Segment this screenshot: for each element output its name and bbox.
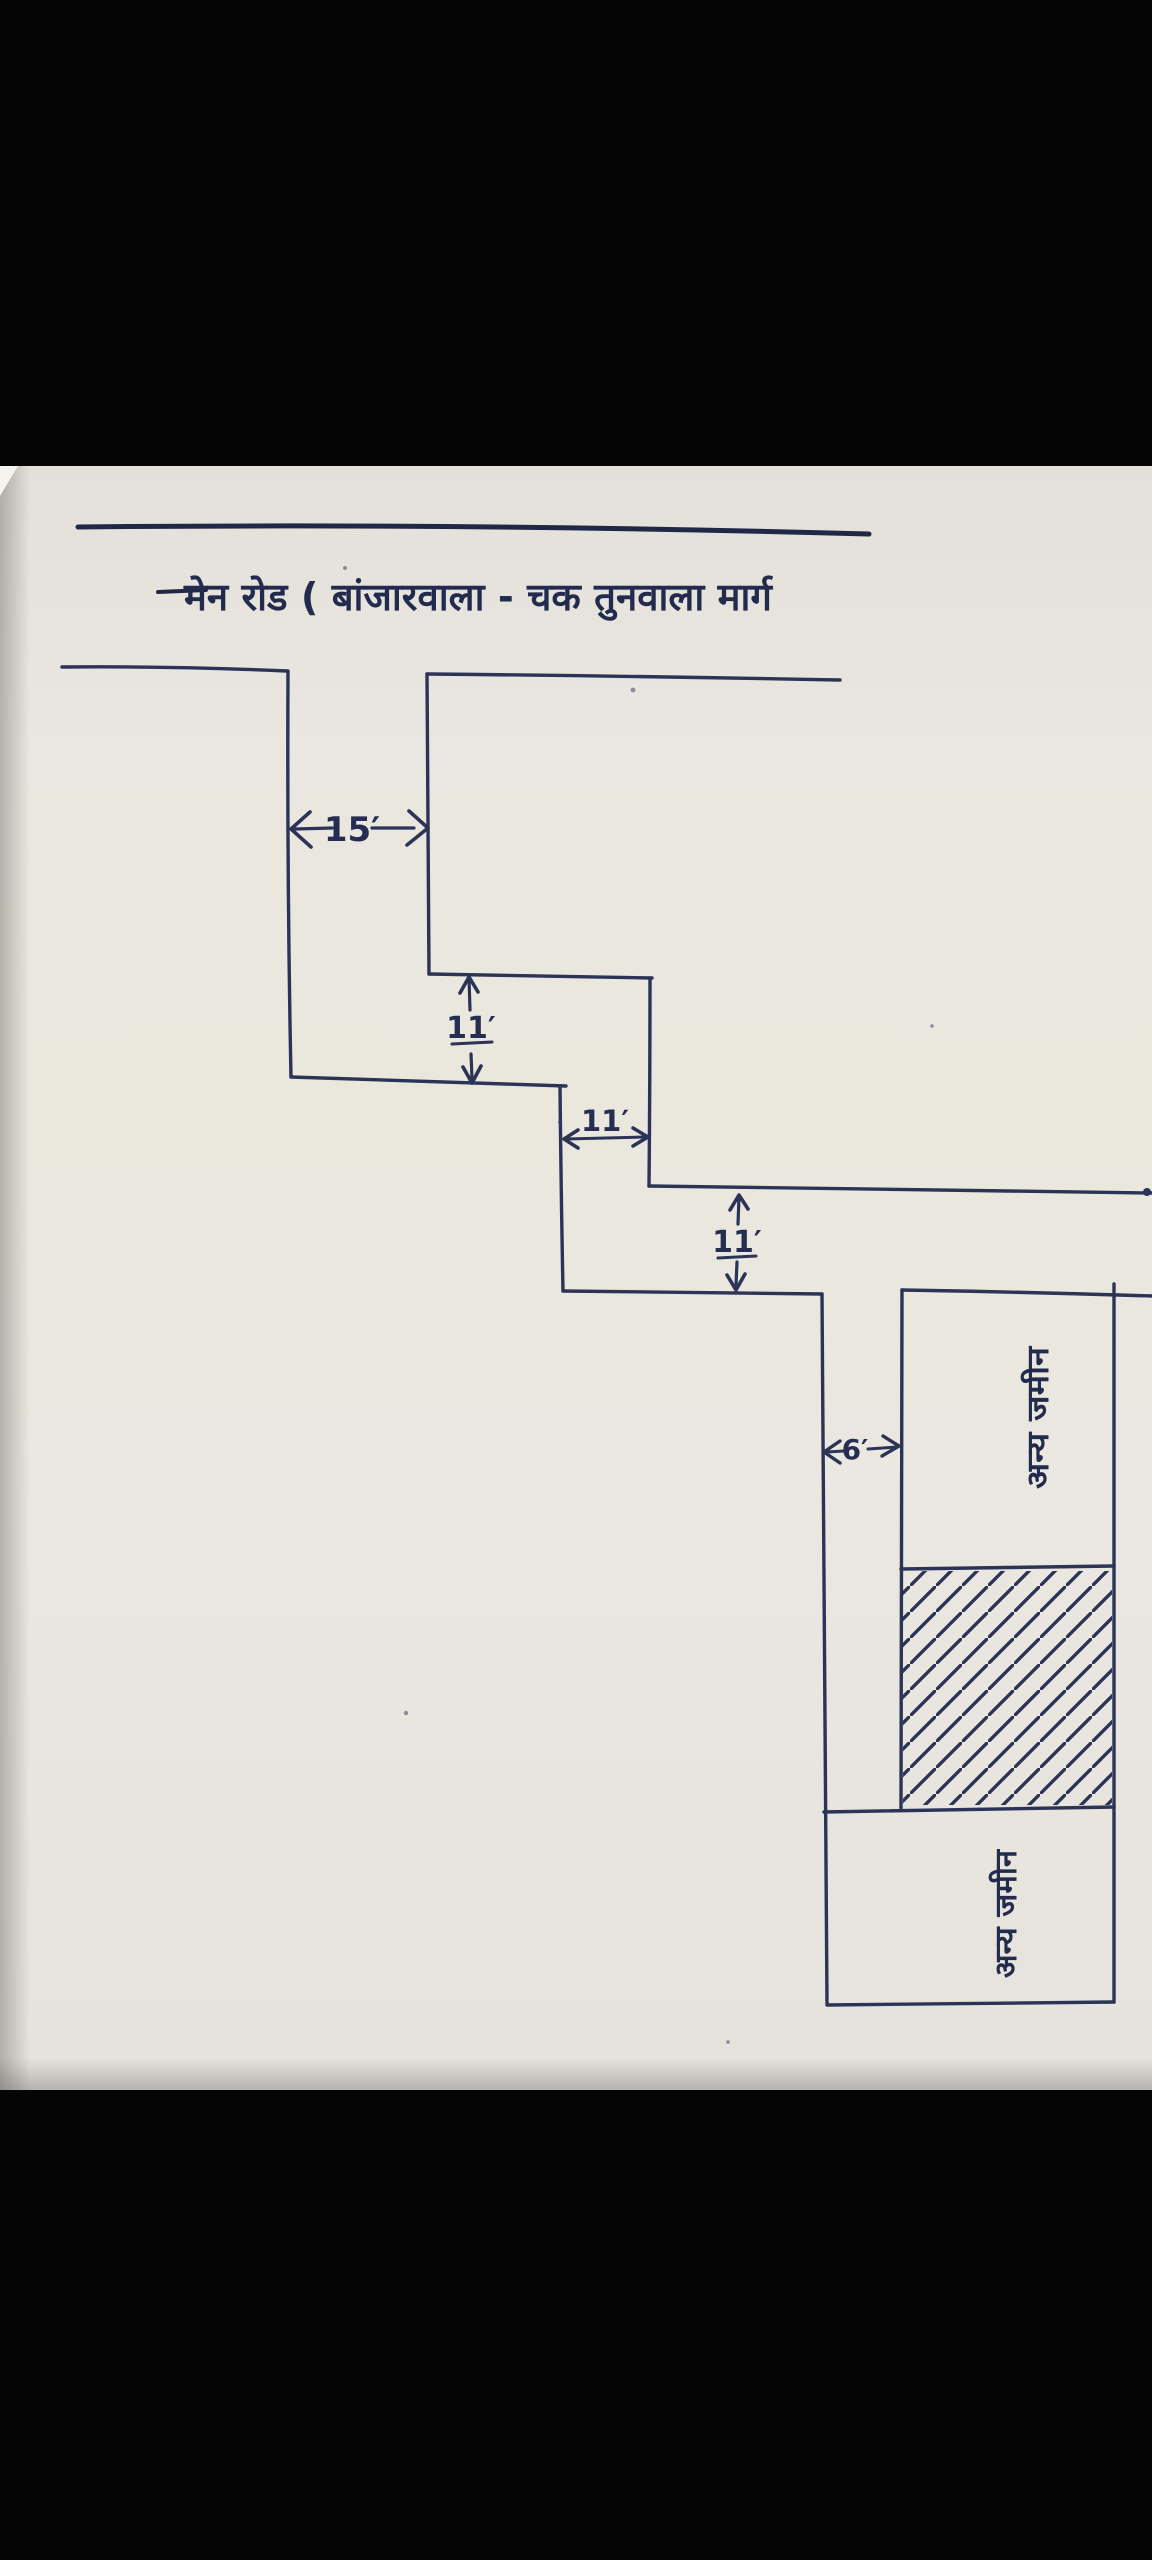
label-underline [452, 1042, 492, 1044]
sketch-title: मेन रोड ( बांजारवाला - चक तुनवाला मार्ग [183, 575, 774, 621]
paper-left-shadow [0, 466, 30, 2090]
wall-right-vertical-2 [649, 978, 650, 1186]
dim-label-11ft-2: 11′ [581, 1104, 629, 1138]
plot-upper-label: अन्य जमीन [1020, 1345, 1056, 1489]
label-underline [718, 1256, 756, 1258]
bottom-black-bar [0, 2090, 1152, 2560]
dim-label-15ft: 15′ [324, 810, 380, 850]
paper-bottom-shadow [0, 2058, 1152, 2090]
photographed-sketch: 15′ 11′ 11′ 11′ 6′ मेन रोड ( बांजारवाला … [0, 0, 1152, 2560]
dim-shaft [736, 1262, 737, 1285]
dim-label-6ft: 6′ [842, 1433, 869, 1466]
wall-right-vertical-1 [427, 674, 429, 974]
plot-left-vertical [901, 1290, 902, 1808]
dim-shaft [469, 979, 470, 1010]
hatched-plot-area [903, 1571, 1112, 1805]
pen-blob [1143, 1188, 1151, 1196]
paper-shading [0, 466, 1152, 2090]
dim-shaft [738, 1197, 739, 1224]
dim-shaft [471, 1054, 472, 1078]
plot-lower-label: अन्य जमीन [988, 1849, 1024, 1978]
top-black-bar [0, 0, 1152, 466]
